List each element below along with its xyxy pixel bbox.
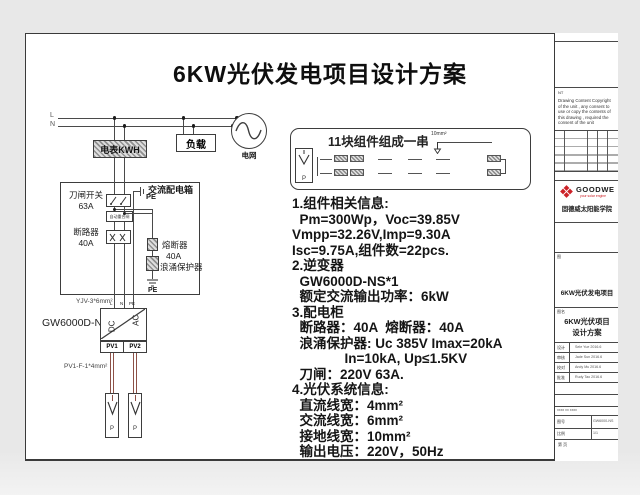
spec-line: 1.组件相关信息: xyxy=(292,196,548,212)
title-block: 知识产权 NT Drawing Content Copyright of the… xyxy=(554,33,618,461)
tb-empty-row xyxy=(555,383,618,395)
brand-name: GOODWE xyxy=(576,186,615,194)
g-cell: 1/1 xyxy=(593,432,598,436)
sig-value: Andy Mu 2016.6 xyxy=(575,366,601,370)
sig-label: 审核 xyxy=(557,356,565,360)
connector-hatch xyxy=(487,155,501,162)
divider xyxy=(569,353,570,363)
string-segment xyxy=(408,159,422,161)
tb-doc-tag: 图名 xyxy=(557,310,565,314)
connector-hatch xyxy=(334,169,348,176)
grid-symbol xyxy=(231,113,267,149)
wire xyxy=(133,191,140,192)
ground-tick xyxy=(140,187,141,196)
sig-label: 设计 xyxy=(557,346,565,350)
stage-caption: xxxx xx xxxx xyxy=(557,409,577,413)
junction-dot xyxy=(192,124,196,128)
ac-cable-label: YJV-3*6mm² xyxy=(76,298,112,305)
wire xyxy=(505,159,506,174)
spec-line: 2.逆变器 xyxy=(292,258,548,274)
tb-empty-cell xyxy=(555,223,618,253)
fuse-name: 熔断器 xyxy=(162,241,188,250)
tb-copyright-cell: NT Drawing Content Copyright of the unit… xyxy=(555,88,618,131)
pv-panel-letter: P xyxy=(133,426,137,432)
small-device-label: 自动重合闸 xyxy=(110,214,130,220)
tb-rev-caption-cell: 标记 处数 更改文件号 签名 日期 xyxy=(555,172,618,181)
sig-value: Sele Yue 2016.6 xyxy=(575,346,601,350)
terminal-pe: PE xyxy=(129,302,135,307)
spec-text-block: 1.组件相关信息: Pm=300Wp，Voc=39.85V Vmpp=32.26… xyxy=(292,196,548,460)
ground-icon xyxy=(146,279,159,287)
junction-dot xyxy=(113,116,117,120)
goodwe-logo-icon xyxy=(560,185,573,198)
wire xyxy=(124,126,125,140)
wire xyxy=(152,271,153,279)
string-segment xyxy=(408,173,422,175)
spec-line: In=10kA, Up≤1.5KV xyxy=(292,351,548,367)
switch-icon xyxy=(107,195,130,206)
tb-copyright-text: Drawing Content Copyright of the unit , … xyxy=(558,98,615,126)
breaker-icon xyxy=(107,231,130,243)
spec-line: Vmpp=32.26V,Imp=9.30A xyxy=(292,227,548,243)
line-n-label: N xyxy=(50,121,55,129)
inverter-ac-label: AC xyxy=(132,315,141,326)
tb-empty-row xyxy=(555,395,618,407)
spec-line: GW6000D-NS*1 xyxy=(292,274,548,290)
connector-hatch xyxy=(350,155,364,162)
wire xyxy=(437,142,492,143)
inverter-dc-label: DC xyxy=(108,321,117,333)
tb-drawing-title-cell: 图名 6KW光伏项目 设计方案 xyxy=(555,308,618,343)
string-segment xyxy=(320,173,332,175)
fuse-rating: 40A xyxy=(166,252,181,261)
breaker-name: 断路器 xyxy=(68,228,104,237)
wire xyxy=(317,157,318,176)
string-segment xyxy=(436,159,450,161)
spec-line: 交流线宽：6mm² xyxy=(292,413,548,429)
wire xyxy=(124,213,152,214)
g-cell: 比例 xyxy=(557,432,565,436)
tb-sig-row: 批准 Rudy Tao 2016.6 xyxy=(555,373,618,383)
divider xyxy=(569,363,570,373)
energy-meter-box: 电表KWH xyxy=(93,140,147,158)
page-title: 6KW光伏发电项目设计方案 xyxy=(140,62,500,87)
tb-top-cell: 知识产权 xyxy=(555,33,618,42)
sig-label: 校对 xyxy=(557,366,565,370)
divider xyxy=(569,343,570,353)
dc-wire xyxy=(110,353,114,394)
tb-stage-row: xxxx xx xxxx xyxy=(555,407,618,416)
org-name: 固德威太阳能学院 xyxy=(555,207,618,214)
pv-chevron-icon xyxy=(107,395,118,417)
connector-hatch xyxy=(334,155,348,162)
sig-label: 批准 xyxy=(557,376,565,380)
spec-line: 4.光伏系统信息: xyxy=(292,382,548,398)
pv1-terminal: PV1 xyxy=(100,341,124,353)
inverter-box: DC AC xyxy=(100,308,147,341)
tb-logo-cell: GOODWE your solar engine 固德威太阳能学院 xyxy=(555,181,618,223)
spec-line: 接地线宽：10mm² xyxy=(292,429,548,445)
sig-value: Jade Sun 2016.6 xyxy=(575,356,602,360)
divider xyxy=(569,373,570,383)
tb-revision-grid xyxy=(555,131,618,172)
pv2-label: PV2 xyxy=(129,344,140,350)
wire xyxy=(114,118,115,140)
divider xyxy=(555,428,618,429)
junction-dot xyxy=(182,116,186,120)
connector-hatch xyxy=(350,169,364,176)
spec-line: Pm=300Wp，Voc=39.85V xyxy=(292,212,548,228)
spec-line: 额定交流输出功率：6kW xyxy=(292,289,548,305)
tb-sig-row: 校对 Andy Mu 2016.6 xyxy=(555,363,618,373)
pv-panel-symbol: P xyxy=(105,393,119,438)
string-box-title: 11块组件组成一串 xyxy=(328,136,429,150)
spec-line: 3.配电柜 xyxy=(292,305,548,321)
pv2-terminal: PV2 xyxy=(123,341,147,353)
fuse-symbol xyxy=(147,238,158,251)
spec-line: 输出电压：220V，50Hz xyxy=(292,444,548,460)
pv-chevron-icon xyxy=(130,395,141,417)
ground-arrow-icon xyxy=(433,142,442,154)
spec-line: 断路器：40A 熔断器：40A xyxy=(292,320,548,336)
spd-name: 浪涌保护器 xyxy=(160,263,203,272)
pv-chevron-icon xyxy=(297,150,311,167)
tb-grid2: 图号 GW6000-NS 比例 1/1 xyxy=(555,416,618,440)
brand-tagline: your solar engine xyxy=(580,195,606,199)
pv-panel-letter: P xyxy=(110,426,114,432)
knife-switch-symbol xyxy=(106,194,131,207)
tb-empty-cell xyxy=(555,42,618,88)
g-cell: 图号 xyxy=(557,420,565,424)
energy-meter-label: 电表KWH xyxy=(100,143,140,156)
tb-sig-row: 审核 Jade Sun 2016.6 xyxy=(555,353,618,363)
spec-line: 浪涌保护器: Uc 385V Imax=20kA xyxy=(292,336,548,352)
junction-dot xyxy=(123,124,127,128)
terminal-l: L xyxy=(110,302,113,307)
pe-top-label: PE xyxy=(146,193,156,201)
sine-wave-icon xyxy=(232,114,265,147)
tb-project-cell: 图 6KW光伏发电项目 xyxy=(555,253,618,308)
tb-page-cell: 第 页 xyxy=(555,440,618,461)
wire xyxy=(114,209,152,210)
spd-symbol xyxy=(146,256,159,271)
drawing-title-line2: 设计方案 xyxy=(555,329,618,337)
string-pv-panel-symbol: P xyxy=(295,148,313,183)
tb-doc-tag: 图 xyxy=(557,255,561,259)
grid-label: 电网 xyxy=(238,152,260,160)
wire xyxy=(183,118,184,134)
wire xyxy=(152,209,153,238)
tb-note-tag: NT xyxy=(558,90,615,95)
ground-tick xyxy=(143,189,144,194)
knife-switch-rating: 63A xyxy=(68,202,104,211)
pv-panel-letter: P xyxy=(302,176,306,182)
tb-sig-row: 设计 Sele Yue 2016.6 xyxy=(555,343,618,353)
connector-hatch xyxy=(487,169,501,176)
spec-line: Isc=9.75A,组件数=22pcs. xyxy=(292,243,548,259)
pv-panel-symbol: P xyxy=(128,393,142,438)
page-note: 第 页 xyxy=(558,443,567,447)
dc-cable-label: PV1-F-1*4mm² xyxy=(64,363,107,370)
dc-wire xyxy=(133,353,137,394)
pe-bottom-label: PE xyxy=(148,287,157,295)
string-segment xyxy=(378,173,392,175)
knife-switch-name: 刀闸开关 xyxy=(68,191,104,200)
string-wire-label: 10mm² xyxy=(431,132,447,137)
pv1-label: PV1 xyxy=(106,344,117,350)
spec-line: 直流线宽：4mm² xyxy=(292,398,548,414)
string-segment xyxy=(378,159,392,161)
breaker-rating: 40A xyxy=(68,239,104,248)
project-name: 6KW光伏发电项目 xyxy=(555,291,618,298)
load-box: 负载 xyxy=(176,134,216,152)
screenshot-canvas: 6KW光伏发电项目设计方案 L N 电表KWH 负载 电网 交流配电箱 PE 刀… xyxy=(0,0,640,495)
string-segment xyxy=(436,173,450,175)
string-segment xyxy=(320,159,332,161)
bus-line-l xyxy=(58,118,238,119)
drawing-title-line1: 6KW光伏项目 xyxy=(555,318,618,326)
line-l-label: L xyxy=(50,112,54,120)
bus-line-n xyxy=(58,126,234,127)
sig-value: Rudy Tao 2016.6 xyxy=(575,376,602,380)
breaker-symbol xyxy=(106,230,131,244)
spec-line: 刀闸：220V 63A. xyxy=(292,367,548,383)
g-cell: GW6000-NS xyxy=(593,420,613,424)
terminal-n: N xyxy=(120,302,123,307)
load-label: 负载 xyxy=(186,136,206,151)
